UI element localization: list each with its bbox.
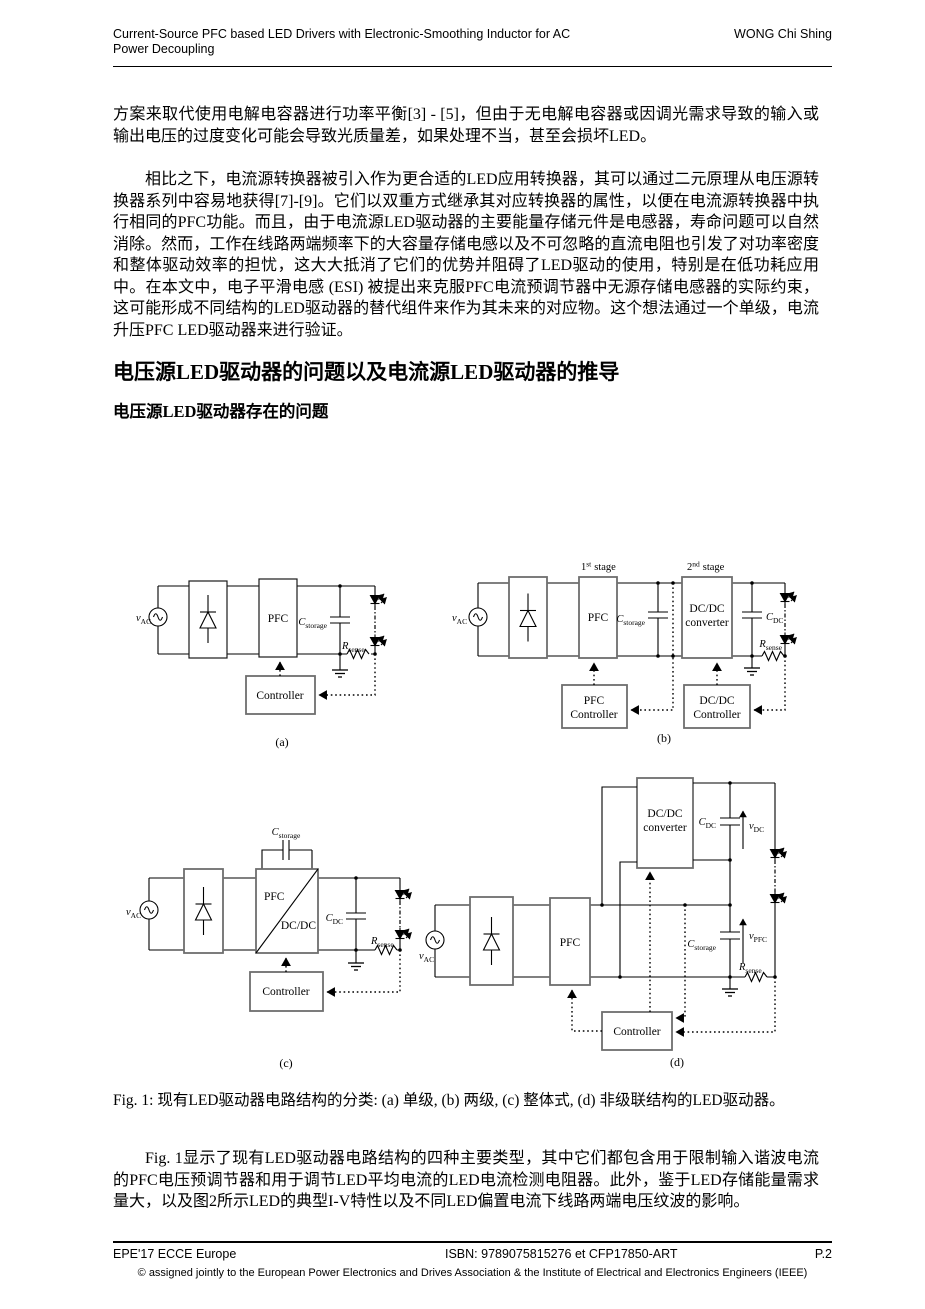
- ac-source: [426, 931, 444, 949]
- cstorage-label: Cstorage: [616, 614, 645, 627]
- vac-label: vAC: [452, 613, 467, 626]
- stage2-label: 2ndstage: [687, 560, 725, 574]
- led-icon: [371, 635, 387, 648]
- subfigure-tag-c: (c): [279, 1056, 292, 1070]
- feedback-line: [319, 654, 375, 695]
- pfc-controller-label-1: PFC: [584, 695, 605, 707]
- controller-label: Controller: [262, 986, 309, 998]
- vac-label: vAC: [419, 951, 434, 964]
- rsense-label: Rsense: [758, 639, 782, 652]
- converter-label: converter: [685, 617, 729, 629]
- dcdc-label: DC/DC: [281, 920, 316, 932]
- dcdc-label: DC/DC: [689, 603, 724, 615]
- circuit-diagram-d: PFC DC/DC converter Controller: [418, 767, 820, 1085]
- figure-caption: Fig. 1: 现有LED驱动器电路结构的分类: (a) 单级, (b) 两级,…: [113, 1090, 825, 1111]
- rsense-label: Rsense: [738, 962, 762, 975]
- feedback-line: [676, 977, 775, 1032]
- rsense-label: Rsense: [370, 936, 394, 949]
- running-title-line1: Current-Source PFC based LED Drivers wit…: [113, 27, 570, 42]
- rectifier-box: [184, 869, 223, 953]
- led-icon: [771, 847, 787, 860]
- cdc-label: CDC: [766, 612, 783, 625]
- rsense-label: Rsense: [341, 641, 365, 654]
- circuit-diagram-a: PFC Controller vAC Cstorage Rsense (a): [135, 565, 445, 760]
- storage-capacitor: [720, 932, 740, 939]
- paragraph-1: 方案来取代使用电解电容器进行功率平衡[3] - [5]，但由于无电解电容器或因调…: [113, 104, 819, 147]
- led-icon: [371, 593, 387, 606]
- dc-capacitor: [346, 913, 366, 919]
- subsection-heading: 电压源LED驱动器存在的问题: [113, 398, 833, 422]
- figure-1: PFC Controller vAC Cstorage Rsense (a): [0, 555, 925, 1090]
- ground-icon: [722, 989, 738, 996]
- footer-copyright: © assigned jointly to the European Power…: [113, 1267, 832, 1279]
- cstorage-label: Cstorage: [272, 827, 301, 840]
- converter-label: converter: [643, 822, 687, 834]
- storage-capacitor: [648, 612, 668, 618]
- storage-capacitor: [330, 617, 350, 623]
- controller-label: Controller: [256, 690, 303, 702]
- cdc-label: CDC: [699, 817, 716, 830]
- vdc-label: vDC: [749, 821, 764, 834]
- feedback-line: [754, 656, 785, 710]
- circuit-diagram-c: PFC DC/DC Controller Cstorage vAC CDC Rs…: [125, 795, 455, 1080]
- pfc-label: PFC: [264, 891, 285, 903]
- footer-conference: EPE'17 ECCE Europe: [113, 1247, 236, 1261]
- feedback-line: [631, 583, 673, 710]
- control-arrow-pfc: [572, 990, 602, 1031]
- running-author: WONG Chi Shing: [734, 27, 832, 42]
- led-icon: [781, 633, 797, 646]
- dcdc-controller-label-1: DC/DC: [699, 695, 734, 707]
- rectifier-box: [189, 581, 227, 658]
- feedback-line: [327, 950, 400, 992]
- cdc-label: CDC: [326, 913, 343, 926]
- ground-icon: [348, 963, 364, 970]
- cstorage-label: Cstorage: [687, 939, 716, 952]
- running-title: Current-Source PFC based LED Drivers wit…: [113, 27, 570, 57]
- stage1-label: 1ststage: [581, 560, 616, 574]
- paper-page: Current-Source PFC based LED Drivers wit…: [0, 0, 925, 1309]
- led-icon: [771, 892, 787, 905]
- led-icon: [781, 591, 797, 604]
- vpfc-label: vPFC: [749, 931, 767, 944]
- page-footer: EPE'17 ECCE Europe ISBN: 9789075815276 e…: [113, 1241, 832, 1279]
- circuit-diagram-b: PFC DC/DC converter PFC Controller DC/DC…: [448, 558, 845, 768]
- pfc-label: PFC: [588, 612, 609, 624]
- paragraph-2: 相比之下，电流源转换器被引入作为更合适的LED应用转换器，其可以通过二元原理从电…: [113, 169, 819, 341]
- rectifier-box: [509, 577, 547, 658]
- page-header: Current-Source PFC based LED Drivers wit…: [113, 27, 832, 67]
- cstorage-label: Cstorage: [298, 617, 327, 630]
- subfigure-tag-d: (d): [670, 1055, 684, 1069]
- led-icon: [396, 928, 412, 941]
- paragraph-3: Fig. 1显示了现有LED驱动器电路结构的四种主要类型，其中它们都包含用于限制…: [113, 1148, 819, 1213]
- subfigure-tag-b: (b): [657, 731, 671, 745]
- pfc-label: PFC: [268, 613, 289, 625]
- controller-label: Controller: [613, 1026, 660, 1038]
- subfigure-tag-a: (a): [275, 735, 288, 749]
- dc-capacitor: [720, 818, 740, 825]
- footer-isbn: ISBN: 9789075815276 et CFP17850-ART: [445, 1247, 678, 1261]
- dcdc-label: DC/DC: [647, 808, 682, 820]
- ac-source: [149, 608, 167, 626]
- pfc-label: PFC: [560, 937, 581, 949]
- pfc-controller-label-2: Controller: [570, 709, 617, 721]
- section-heading: 电压源LED驱动器的问题以及电流源LED驱动器的推导: [113, 356, 833, 386]
- running-title-line2: Power Decoupling: [113, 42, 570, 57]
- rectifier-box: [470, 897, 513, 985]
- storage-capacitor: [283, 840, 289, 860]
- ground-icon: [332, 670, 348, 677]
- led-icon: [396, 888, 412, 901]
- feedback-line: [676, 905, 685, 1018]
- ac-source: [469, 608, 487, 626]
- ac-source: [140, 901, 158, 919]
- vac-label: vAC: [126, 907, 141, 920]
- footer-page-number: P.2: [815, 1247, 832, 1261]
- ground-icon: [744, 668, 760, 675]
- dc-capacitor: [742, 612, 762, 618]
- dcdc-controller-label-2: Controller: [693, 709, 740, 721]
